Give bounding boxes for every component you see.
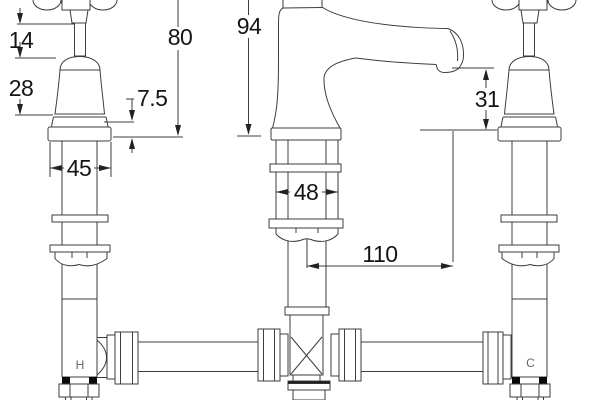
dim-14-label: 14	[9, 27, 34, 53]
cross-fitting	[285, 307, 330, 400]
dim-7-5-label: 7.5	[137, 85, 167, 111]
left-elbow	[97, 338, 108, 378]
left-tap-hot	[33, 0, 117, 400]
dim-80-label: 80	[168, 24, 193, 50]
dim-48-label: 48	[294, 179, 319, 205]
technical-drawing-page: 14 28 7.5 80 94 45 48	[0, 0, 600, 400]
dim-31-label: 31	[475, 86, 500, 112]
dim-45-label: 45	[67, 155, 92, 181]
dim-110-label: 110	[362, 241, 397, 267]
hot-label: H	[76, 358, 85, 372]
cold-label: C	[526, 356, 535, 370]
faucet-dimension-drawing: 14 28 7.5 80 94 45 48	[0, 0, 600, 400]
dim-94-label: 94	[237, 13, 262, 39]
dim-28-label: 28	[9, 75, 34, 101]
